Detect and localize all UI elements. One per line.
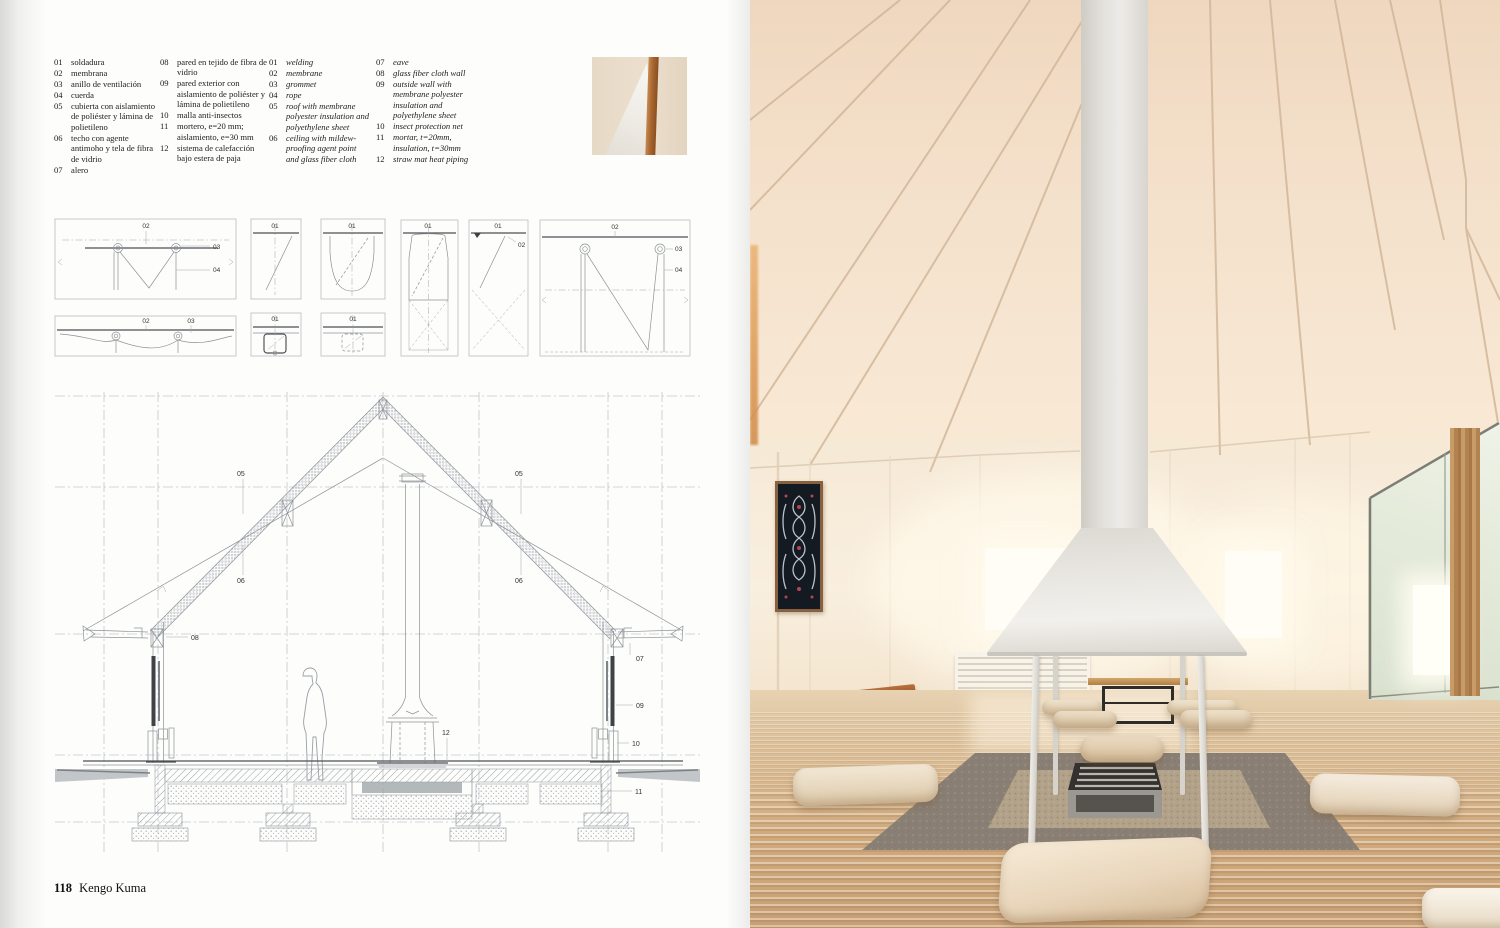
callout: 05 bbox=[237, 471, 245, 478]
floor-cushion-front bbox=[997, 836, 1212, 924]
callout: 03 bbox=[675, 246, 683, 253]
callout: 06 bbox=[515, 578, 523, 585]
detail-box-grommet-rope-elevation: 02 03 04 bbox=[540, 220, 690, 356]
detail-box-weld-seam: 01 bbox=[251, 219, 301, 299]
fireplace-flue-column bbox=[1081, 0, 1148, 532]
building-section-drawing: 05 05 06 06 07 08 09 10 11 bbox=[55, 392, 700, 852]
callout: 01 bbox=[349, 316, 357, 323]
detail-box-corner-weld: 01 bbox=[251, 313, 301, 356]
detail-box-corner-weld-dashed: 01 bbox=[321, 313, 385, 356]
author-name: Kengo Kuma bbox=[79, 881, 146, 895]
callout: 06 bbox=[237, 578, 245, 585]
detail-box-grommet-rope-plan: 02 03 04 bbox=[55, 219, 236, 299]
wall-right bbox=[590, 622, 620, 763]
page-number: 118 bbox=[54, 881, 72, 895]
floor-cushion bbox=[1053, 711, 1117, 728]
page-footer: 118Kengo Kuma bbox=[54, 881, 146, 896]
book-spread: 01soldadura02membrana03anillo de ventila… bbox=[0, 0, 1500, 928]
floor-cushion bbox=[1080, 736, 1164, 762]
wood-post-right bbox=[1450, 428, 1480, 696]
callout: 05 bbox=[515, 471, 523, 478]
chimney-stove bbox=[377, 474, 448, 767]
callout: 10 bbox=[632, 741, 640, 748]
callout: 02 bbox=[142, 318, 150, 325]
callout: 02 bbox=[611, 224, 619, 231]
low-table-top bbox=[1088, 678, 1188, 685]
callout: 09 bbox=[636, 703, 644, 710]
callout: 12 bbox=[442, 730, 450, 737]
truss-braces bbox=[151, 400, 623, 647]
detail-box-membrane-sleeve: 01 bbox=[321, 219, 385, 299]
eave-left bbox=[83, 626, 148, 641]
callout: 03 bbox=[213, 244, 221, 251]
low-table-shelf bbox=[1102, 702, 1174, 704]
detail-box-sagging-rope: 02 03 bbox=[55, 316, 236, 356]
callout: 01 bbox=[271, 223, 279, 230]
technical-drawings: 02 03 04 01 01 bbox=[0, 0, 750, 928]
callout: 01 bbox=[348, 223, 356, 230]
floor-cushion bbox=[1180, 710, 1252, 728]
floor-cushion-left bbox=[792, 763, 938, 806]
callout: 03 bbox=[187, 318, 195, 325]
fire-grate bbox=[1068, 763, 1162, 818]
callout: 02 bbox=[142, 223, 150, 230]
floor-cushion-corner bbox=[1422, 888, 1500, 928]
callout: 02 bbox=[518, 242, 526, 249]
eave-right bbox=[618, 626, 683, 641]
callout: 04 bbox=[213, 267, 221, 274]
human-figure bbox=[303, 668, 326, 780]
section-callouts: 05 05 06 06 07 08 09 10 11 bbox=[166, 471, 644, 796]
left-page: 01soldadura02membrana03anillo de ventila… bbox=[0, 0, 750, 928]
callout: 11 bbox=[635, 789, 642, 796]
fireplace-hood-rim bbox=[987, 652, 1247, 656]
floor-cushion-right bbox=[1310, 773, 1461, 817]
callout: 01 bbox=[424, 223, 432, 230]
callout: 04 bbox=[675, 267, 683, 274]
interior-photograph bbox=[750, 0, 1500, 928]
callout: 08 bbox=[191, 635, 199, 642]
detail-box-sleeve-section: 01 bbox=[401, 220, 458, 356]
detail-box-wall-top-section: 01 02 bbox=[469, 220, 528, 356]
wall-left bbox=[146, 622, 176, 763]
gutter-shadow bbox=[726, 0, 750, 928]
callout: 07 bbox=[636, 656, 644, 663]
callout: 01 bbox=[271, 316, 279, 323]
window-reflection-in-glass bbox=[1413, 585, 1453, 675]
callout: 01 bbox=[494, 223, 502, 230]
